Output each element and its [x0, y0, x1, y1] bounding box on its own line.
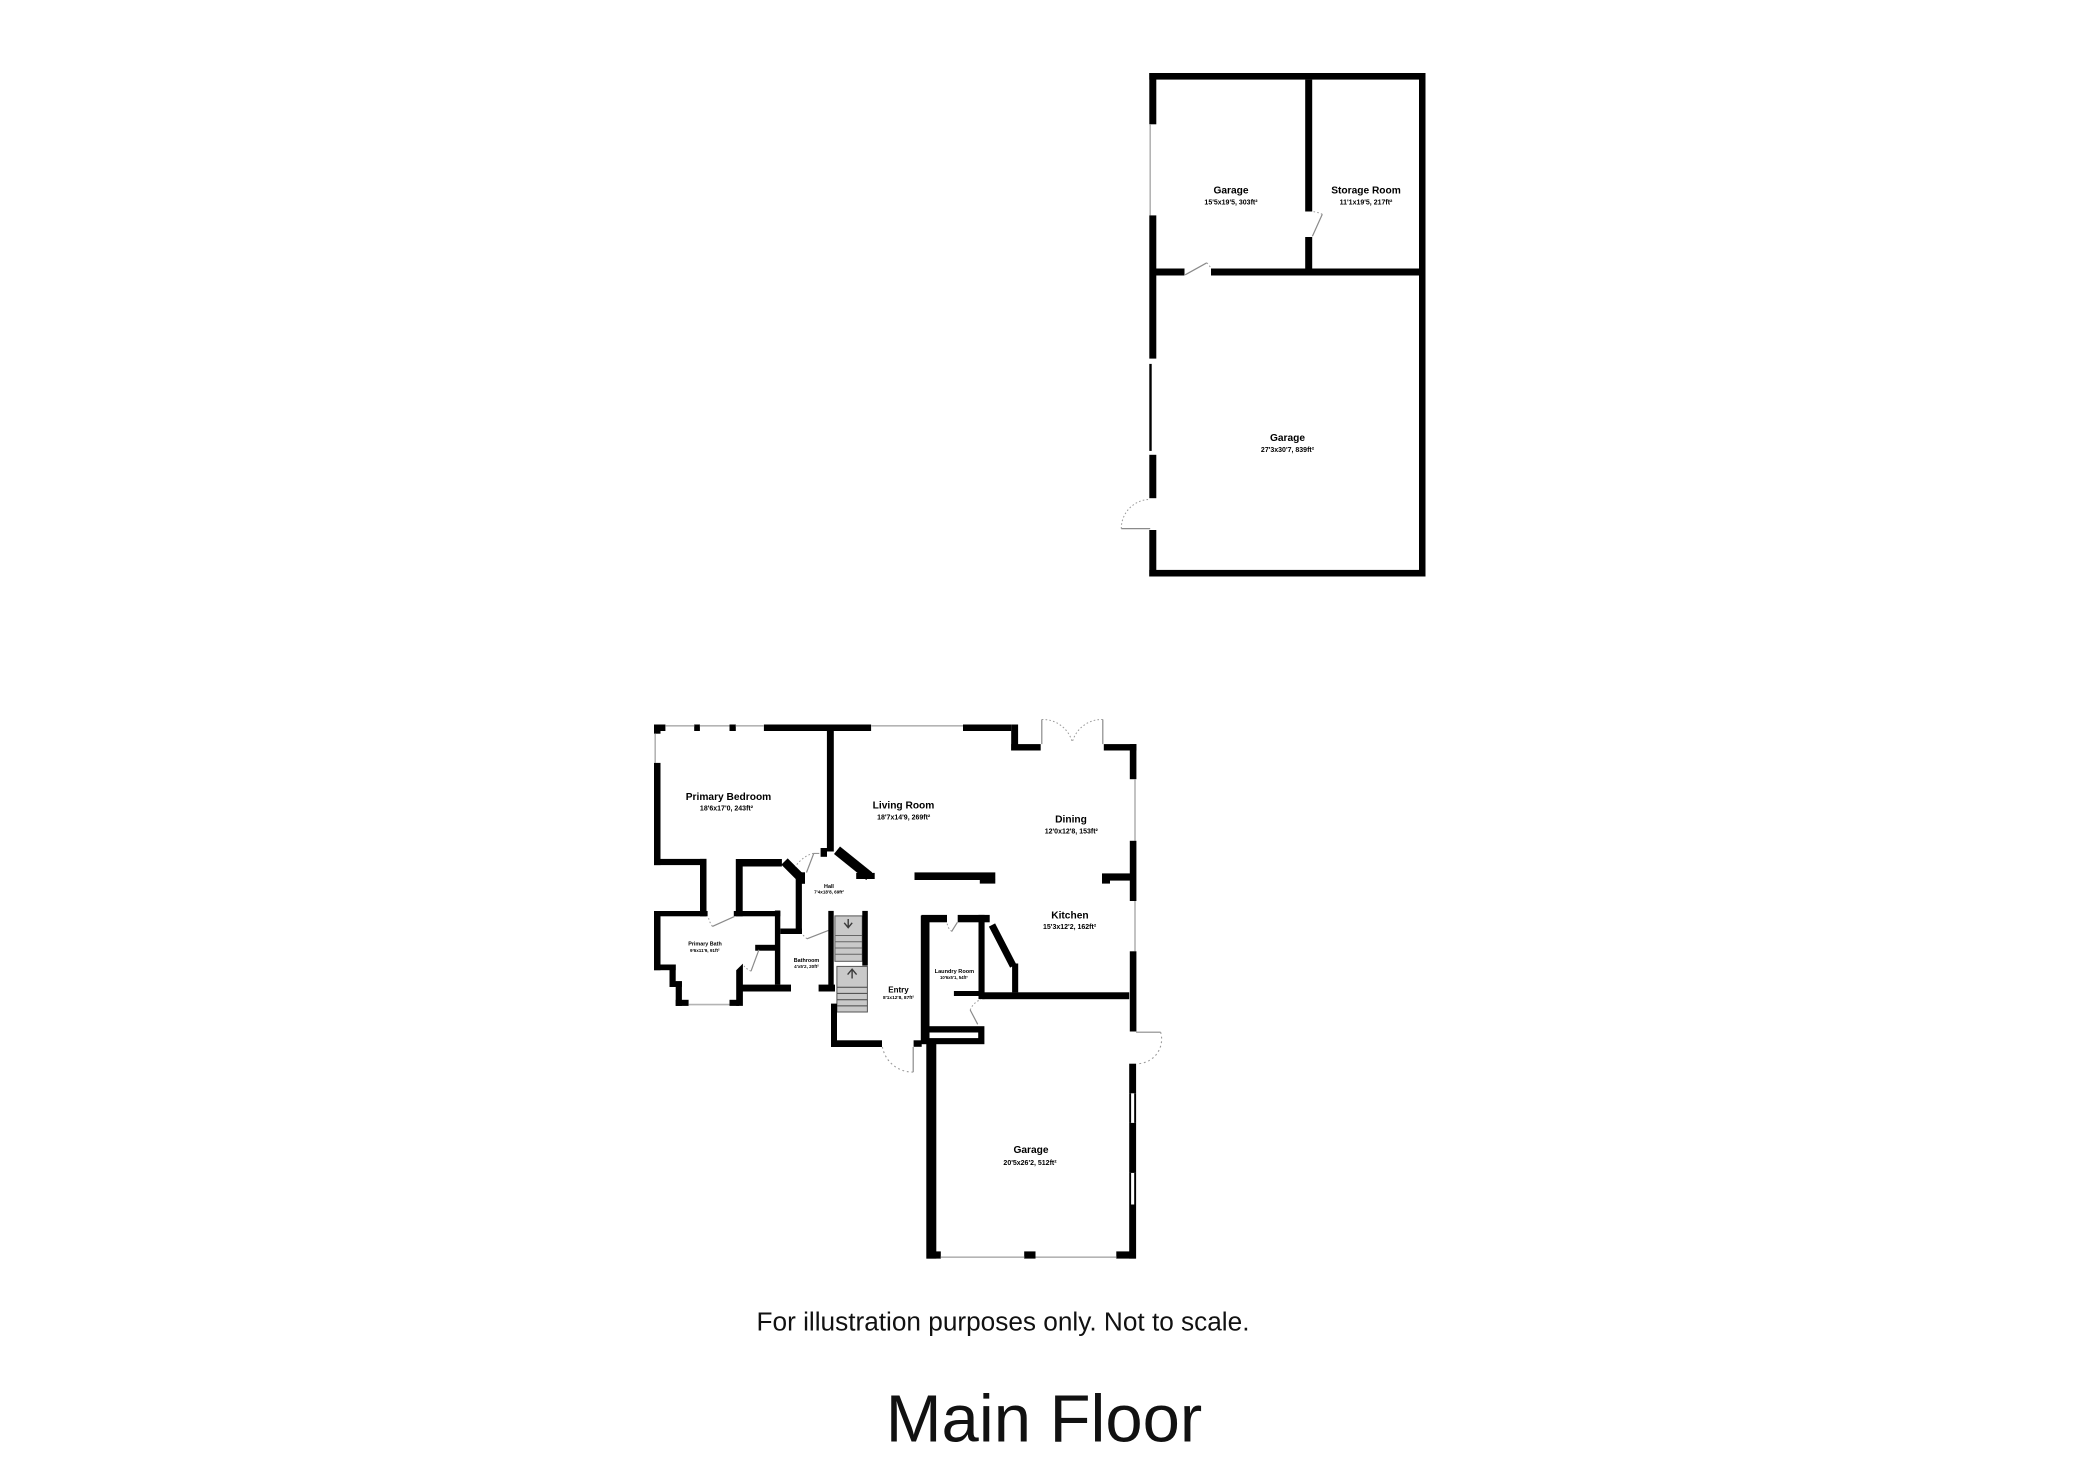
- svg-text:Main Floor: Main Floor: [886, 1382, 1202, 1457]
- svg-text:Living Room: Living Room: [873, 801, 935, 812]
- svg-text:10'6x5'1, 54ft²: 10'6x5'1, 54ft²: [940, 975, 968, 980]
- svg-text:9'6x11'9, 91ft²: 9'6x11'9, 91ft²: [690, 948, 720, 953]
- svg-text:20'5x26'2, 512ft²: 20'5x26'2, 512ft²: [1003, 1160, 1057, 1167]
- svg-text:15'5x19'5, 303ft²: 15'5x19'5, 303ft²: [1204, 200, 1258, 207]
- svg-text:11'1x19'5, 217ft²: 11'1x19'5, 217ft²: [1340, 200, 1393, 207]
- svg-text:Dining: Dining: [1055, 815, 1087, 826]
- svg-text:12'0x12'8, 153ft²: 12'0x12'8, 153ft²: [1045, 829, 1099, 836]
- svg-text:Garage: Garage: [1213, 186, 1248, 197]
- svg-text:18'7x14'9, 269ft²: 18'7x14'9, 269ft²: [877, 815, 931, 822]
- svg-text:27'3x30'7, 839ft²: 27'3x30'7, 839ft²: [1261, 447, 1315, 454]
- svg-text:Garage: Garage: [1013, 1145, 1048, 1156]
- svg-text:Entry: Entry: [888, 986, 909, 995]
- svg-text:Storage Room: Storage Room: [1331, 186, 1401, 197]
- svg-text:Primary Bedroom: Primary Bedroom: [686, 792, 772, 803]
- svg-text:Primary Bath: Primary Bath: [688, 942, 722, 948]
- svg-text:Kitchen: Kitchen: [1051, 910, 1088, 921]
- svg-text:8'1x12'8, 87ft²: 8'1x12'8, 87ft²: [883, 995, 914, 1001]
- svg-text:15'3x12'2, 162ft²: 15'3x12'2, 162ft²: [1043, 924, 1097, 931]
- svg-text:7'4x18'8, 69ft²: 7'4x18'8, 69ft²: [814, 890, 844, 895]
- svg-text:18'6x17'0, 243ft²: 18'6x17'0, 243ft²: [700, 806, 754, 813]
- svg-text:For illustration purposes only: For illustration purposes only. Not to s…: [757, 1307, 1250, 1337]
- svg-text:4'x5'2, 20ft²: 4'x5'2, 20ft²: [794, 964, 819, 969]
- svg-text:Garage: Garage: [1270, 433, 1305, 444]
